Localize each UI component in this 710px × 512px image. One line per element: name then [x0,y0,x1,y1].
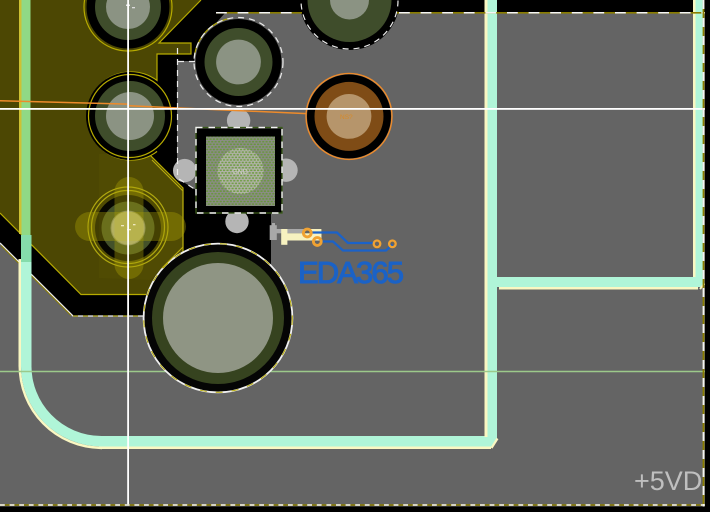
svg-text:EDA365: EDA365 [298,255,404,290]
svg-text:+5VD: +5VD [634,466,702,496]
svg-text:NS?: NS? [340,114,353,121]
svg-text:GND: GND [232,169,248,176]
